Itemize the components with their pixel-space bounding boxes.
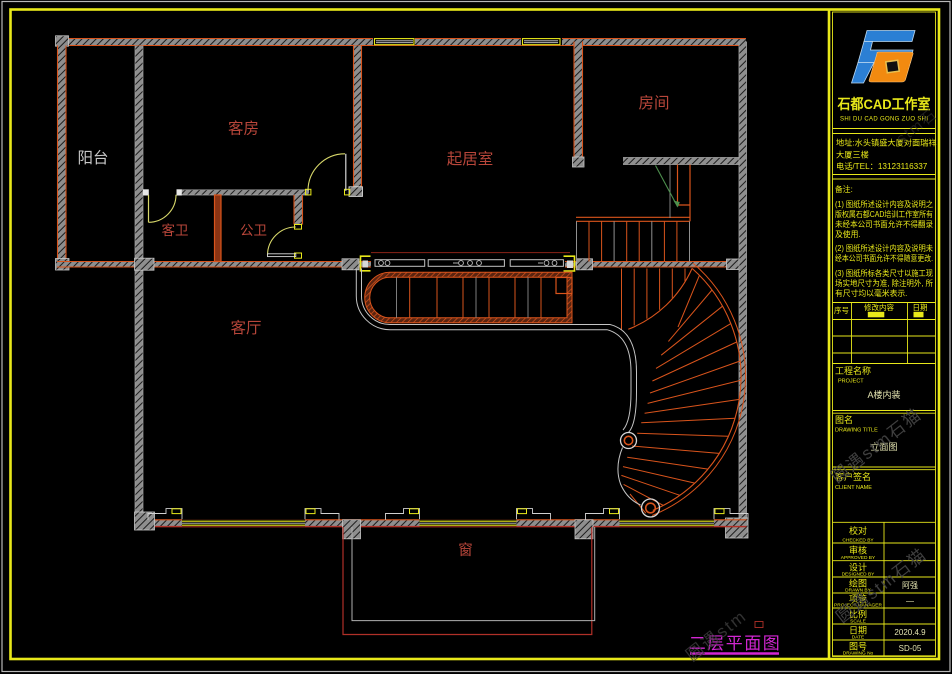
svg-text:2020.4.9: 2020.4.9	[894, 628, 926, 637]
svg-text:DRAWING TITLE: DRAWING TITLE	[835, 428, 878, 434]
svg-text:CLIENT NAME: CLIENT NAME	[835, 485, 872, 491]
svg-text:—: —	[906, 597, 914, 606]
svg-text:地址:水头镇盛大厦对面瑞祥: 地址:水头镇盛大厦对面瑞祥	[836, 138, 937, 148]
svg-text:DATE: DATE	[852, 635, 864, 641]
svg-text:图号: 图号	[849, 641, 867, 651]
svg-text:A楼内装: A楼内装	[867, 389, 900, 400]
svg-text:有尺寸均以毫米表示.: 有尺寸均以毫米表示.	[835, 288, 907, 298]
svg-text:公卫: 公卫	[240, 223, 267, 238]
svg-text:日期: 日期	[913, 303, 928, 312]
svg-text:大厦三楼: 大厦三楼	[836, 150, 869, 160]
svg-text:客房: 客房	[228, 120, 259, 138]
svg-text:阳台: 阳台	[77, 149, 108, 167]
svg-text:工程名称: 工程名称	[835, 365, 871, 376]
svg-text:DESIGNED BY: DESIGNED BY	[842, 572, 876, 578]
svg-text:房间: 房间	[638, 94, 669, 112]
svg-text:日期: 日期	[849, 626, 867, 636]
svg-text:石都CAD工作室: 石都CAD工作室	[837, 96, 931, 112]
svg-text:起居室: 起居室	[447, 150, 494, 168]
svg-text:客厅: 客厅	[230, 319, 261, 337]
svg-text:备注:: 备注:	[835, 184, 853, 194]
svg-text:序号: 序号	[834, 305, 849, 315]
svg-text:CHECKED BY: CHECKED BY	[842, 538, 874, 544]
svg-text:阿强: 阿强	[902, 581, 918, 590]
svg-text:APPROVED BY: APPROVED BY	[841, 555, 876, 561]
svg-text:DRAWING No: DRAWING No	[843, 650, 874, 656]
svg-text:校对: 校对	[849, 525, 867, 536]
svg-text:(1) 图纸所述设计内容及说明之: (1) 图纸所述设计内容及说明之	[835, 199, 933, 209]
svg-text:(2) 图纸所述设计内容及说明未: (2) 图纸所述设计内容及说明未	[835, 243, 933, 253]
svg-text:图名: 图名	[835, 414, 853, 425]
svg-text:及使用.: 及使用.	[835, 229, 861, 239]
svg-text:窗: 窗	[458, 541, 473, 559]
svg-text:(3) 图纸所标各类尺寸以施工现: (3) 图纸所标各类尺寸以施工现	[835, 268, 933, 278]
svg-text:PROJECT: PROJECT	[838, 379, 864, 385]
svg-text:SD-05: SD-05	[899, 644, 922, 653]
svg-text:版权属石都CAD培训工作室所有: 版权属石都CAD培训工作室所有	[835, 209, 933, 219]
svg-text:电话/TEL：13123116337: 电话/TEL：13123116337	[836, 161, 928, 171]
svg-text:未经本公司书面允许不得翻录: 未经本公司书面允许不得翻录	[835, 219, 933, 229]
svg-text:经本公司书面允许不得随意更改.: 经本公司书面允许不得随意更改.	[835, 253, 933, 263]
svg-text:客卫: 客卫	[162, 222, 189, 238]
svg-text:场实地尺寸为准, 除注明外, 所: 场实地尺寸为准, 除注明外, 所	[835, 278, 933, 288]
svg-text:审核: 审核	[849, 544, 867, 555]
svg-text:修改内容: 修改内容	[864, 302, 894, 312]
svg-text:设计: 设计	[849, 561, 867, 572]
